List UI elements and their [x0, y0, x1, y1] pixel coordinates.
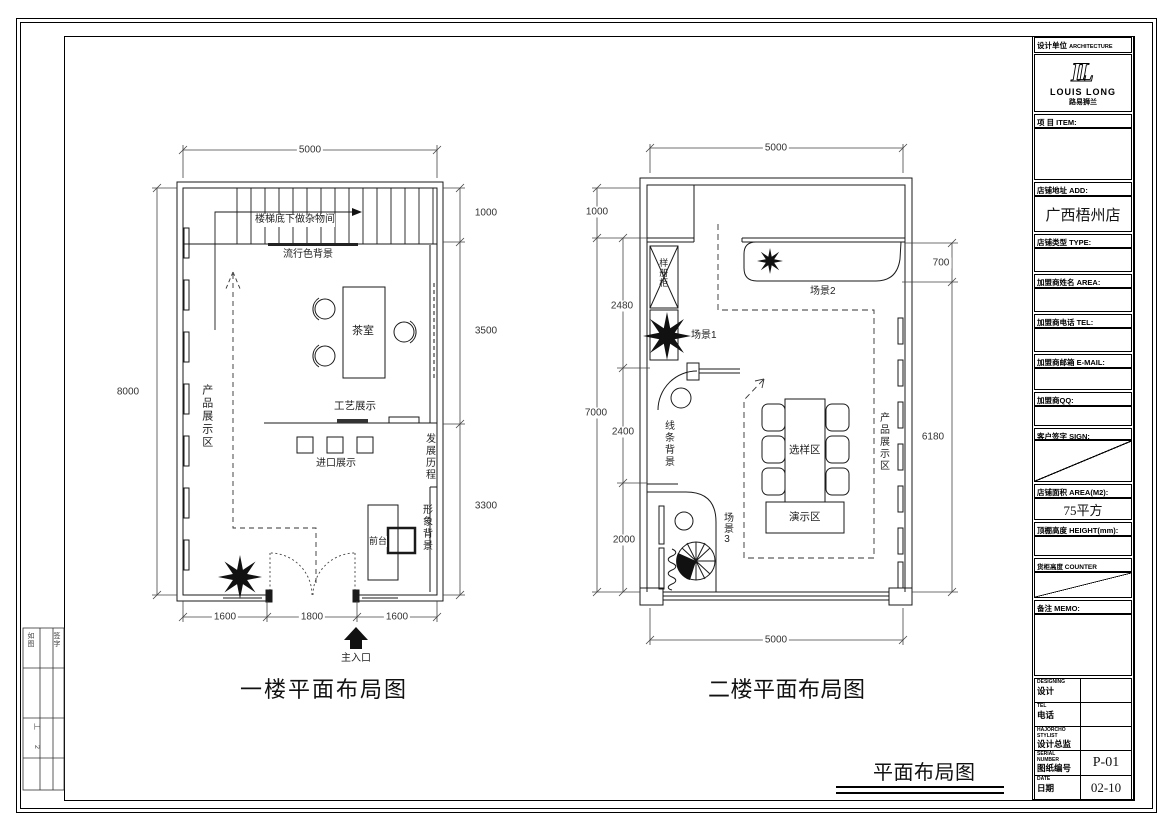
row-stylist-value	[1080, 726, 1132, 751]
drawing-sheet: 楼梯底下做杂物间 流行色背景 茶室 工艺展示 进口展示 发展历程 产品展示区 前…	[0, 0, 1173, 828]
brand-name-cn: 路易狮兰	[1035, 97, 1131, 107]
scene1-label: 场景1	[691, 330, 717, 343]
product-area-label-f2: 产品展示区	[876, 412, 889, 472]
image-bg-label: 形象背景	[419, 504, 432, 552]
selection-area-label: 选样区	[789, 444, 821, 457]
row-tel-cn: 电话	[1037, 710, 1078, 720]
floor1-title: 一楼平面布局图	[240, 672, 408, 704]
ceiling-height-box	[1034, 536, 1132, 556]
franchisee-tel-label: 加盟商电话 TEL:	[1034, 314, 1132, 328]
scene3-label: 场景3	[720, 512, 733, 546]
demo-area-label: 演示区	[789, 511, 821, 524]
row-date-value: 02-10	[1080, 775, 1132, 800]
counter-height-box	[1034, 572, 1132, 598]
craft-display-label: 工艺展示	[334, 400, 376, 413]
dev-history-label: 发展历程	[422, 433, 435, 481]
franchisee-qq-box	[1034, 406, 1132, 426]
dim-f2-r1: 700	[931, 258, 952, 269]
counter-height-label: 货柜高度 COUNTER HEIGHT(mm):	[1034, 558, 1132, 572]
row-tel-label: TEL 电话	[1034, 702, 1081, 727]
dim-f2-bottom: 5000	[763, 635, 789, 646]
sign-label: 客户签字 SIGN:	[1034, 428, 1132, 440]
brand-monogram: LL	[1035, 55, 1132, 87]
franchisee-name-label: 加盟商姓名 AREA:	[1034, 274, 1132, 288]
strip-cell-1: 如图	[25, 632, 35, 648]
row-serial-en: SERIAL NUMBER	[1037, 752, 1078, 763]
title-block: 设计单位 ARCHITECTURE DESIGN LL LOUIS LONG 路…	[1032, 36, 1134, 800]
addr-value: 广西梧州店	[1034, 196, 1132, 232]
strip-cell-4: 2	[33, 745, 40, 750]
sign-box	[1034, 440, 1132, 482]
row-tel-value	[1080, 702, 1132, 727]
area-label: 店铺面积 AREA(M2):	[1034, 484, 1132, 498]
dim-f1-r2: 3500	[475, 326, 497, 337]
item-value-box	[1034, 128, 1132, 180]
front-desk-label: 前台	[369, 536, 387, 547]
dim-f1-b2: 1800	[299, 612, 325, 623]
franchisee-tel-box	[1034, 328, 1132, 352]
dim-f1-b3: 1600	[384, 612, 410, 623]
brand-name: LOUIS LONG	[1035, 87, 1131, 97]
dim-f2-top: 5000	[763, 143, 789, 154]
dim-f1-b1: 1600	[212, 612, 238, 623]
row-designing-cn: 设计	[1037, 686, 1078, 696]
sheet-title: 平面布局图	[873, 756, 976, 785]
row-serial-cn: 图纸编号	[1037, 763, 1078, 773]
dim-f1-top: 5000	[297, 145, 323, 156]
import-display-label: 进口展示	[316, 458, 356, 471]
memo-label: 备注 MEMO:	[1034, 600, 1132, 614]
design-unit-cn: 设计单位	[1037, 41, 1067, 50]
ceiling-height-label: 顶棚高度 HEIGHT(mm):	[1034, 522, 1132, 536]
row-designing-value	[1080, 678, 1132, 703]
dim-f2-l5: 2000	[611, 535, 637, 546]
franchisee-email-box	[1034, 368, 1132, 390]
dim-f2-l1: 1000	[584, 207, 610, 218]
dim-f1-r1: 1000	[475, 208, 497, 219]
dim-f1-r3: 3300	[475, 501, 497, 512]
dim-f1-left: 8000	[117, 387, 139, 398]
design-unit-row: 设计单位 ARCHITECTURE DESIGN	[1034, 37, 1132, 53]
memo-box	[1034, 614, 1132, 676]
row-stylist-cn: 设计总监	[1037, 739, 1078, 749]
brand-logo-box: LL LOUIS LONG 路易狮兰	[1034, 54, 1132, 112]
addr-label: 店铺地址 ADD:	[1034, 182, 1132, 196]
dim-f2-l3: 7000	[583, 408, 609, 419]
row-serial-value: P-01	[1080, 750, 1132, 776]
type-label: 店铺类型 TYPE:	[1034, 234, 1132, 248]
sample-cabinet-label: 样册柜	[657, 258, 668, 288]
row-serial-label: SERIAL NUMBER 图纸编号	[1034, 750, 1081, 776]
strip-cell-3: 工	[32, 723, 42, 731]
product-area-label-f1: 产品展示区	[199, 384, 213, 449]
type-value-box	[1034, 248, 1132, 272]
floor2-title: 二楼平面布局图	[708, 672, 866, 704]
row-designing-label: DESIGNING 设计	[1034, 678, 1081, 703]
main-entrance-label: 主入口	[341, 653, 371, 666]
dim-f2-l4: 2400	[610, 427, 636, 438]
dim-f2-l2: 2480	[609, 301, 635, 312]
svg-text:LL: LL	[1070, 58, 1093, 87]
dim-f2-r2: 6180	[922, 432, 944, 443]
item-label: 项 目 ITEM:	[1034, 114, 1132, 128]
inner-frame	[64, 36, 1135, 801]
trend-color-bg-label: 流行色背景	[283, 249, 333, 262]
franchisee-qq-label: 加盟商QQ:	[1034, 392, 1132, 406]
scene2-label: 场景2	[810, 286, 836, 299]
tea-room-label: 茶室	[352, 325, 374, 339]
franchisee-name-box	[1034, 288, 1132, 312]
franchisee-email-label: 加盟商邮箱 E-MAIL:	[1034, 354, 1132, 368]
strip-cell-2: 签字	[51, 632, 61, 648]
sheet-title-underline	[836, 786, 1004, 794]
stair-note-label: 楼梯底下做杂物间	[255, 214, 335, 227]
row-stylist-en: HAJORCHO STYLIST	[1037, 728, 1078, 739]
line-bg-label: 线条背景	[661, 420, 674, 468]
area-value: 75平方	[1034, 498, 1132, 520]
row-stylist-label: HAJORCHO STYLIST 设计总监	[1034, 726, 1081, 751]
row-date-cn: 日期	[1037, 783, 1078, 793]
row-date-label: DATE 日期	[1034, 775, 1081, 800]
